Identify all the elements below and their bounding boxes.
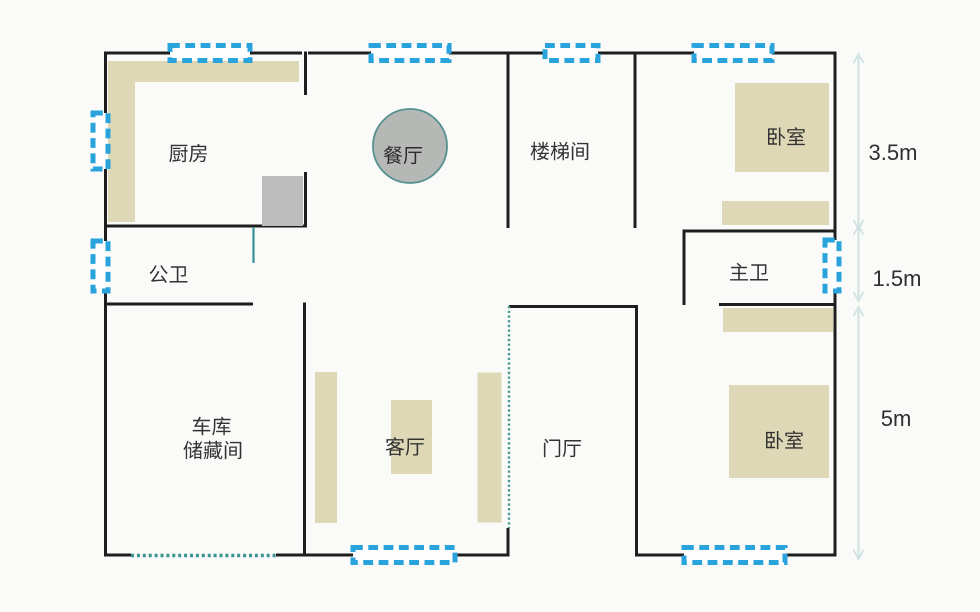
svg-text:1.5m: 1.5m — [873, 266, 922, 291]
svg-text:3.5m: 3.5m — [869, 140, 918, 165]
svg-text:5m: 5m — [881, 406, 912, 431]
